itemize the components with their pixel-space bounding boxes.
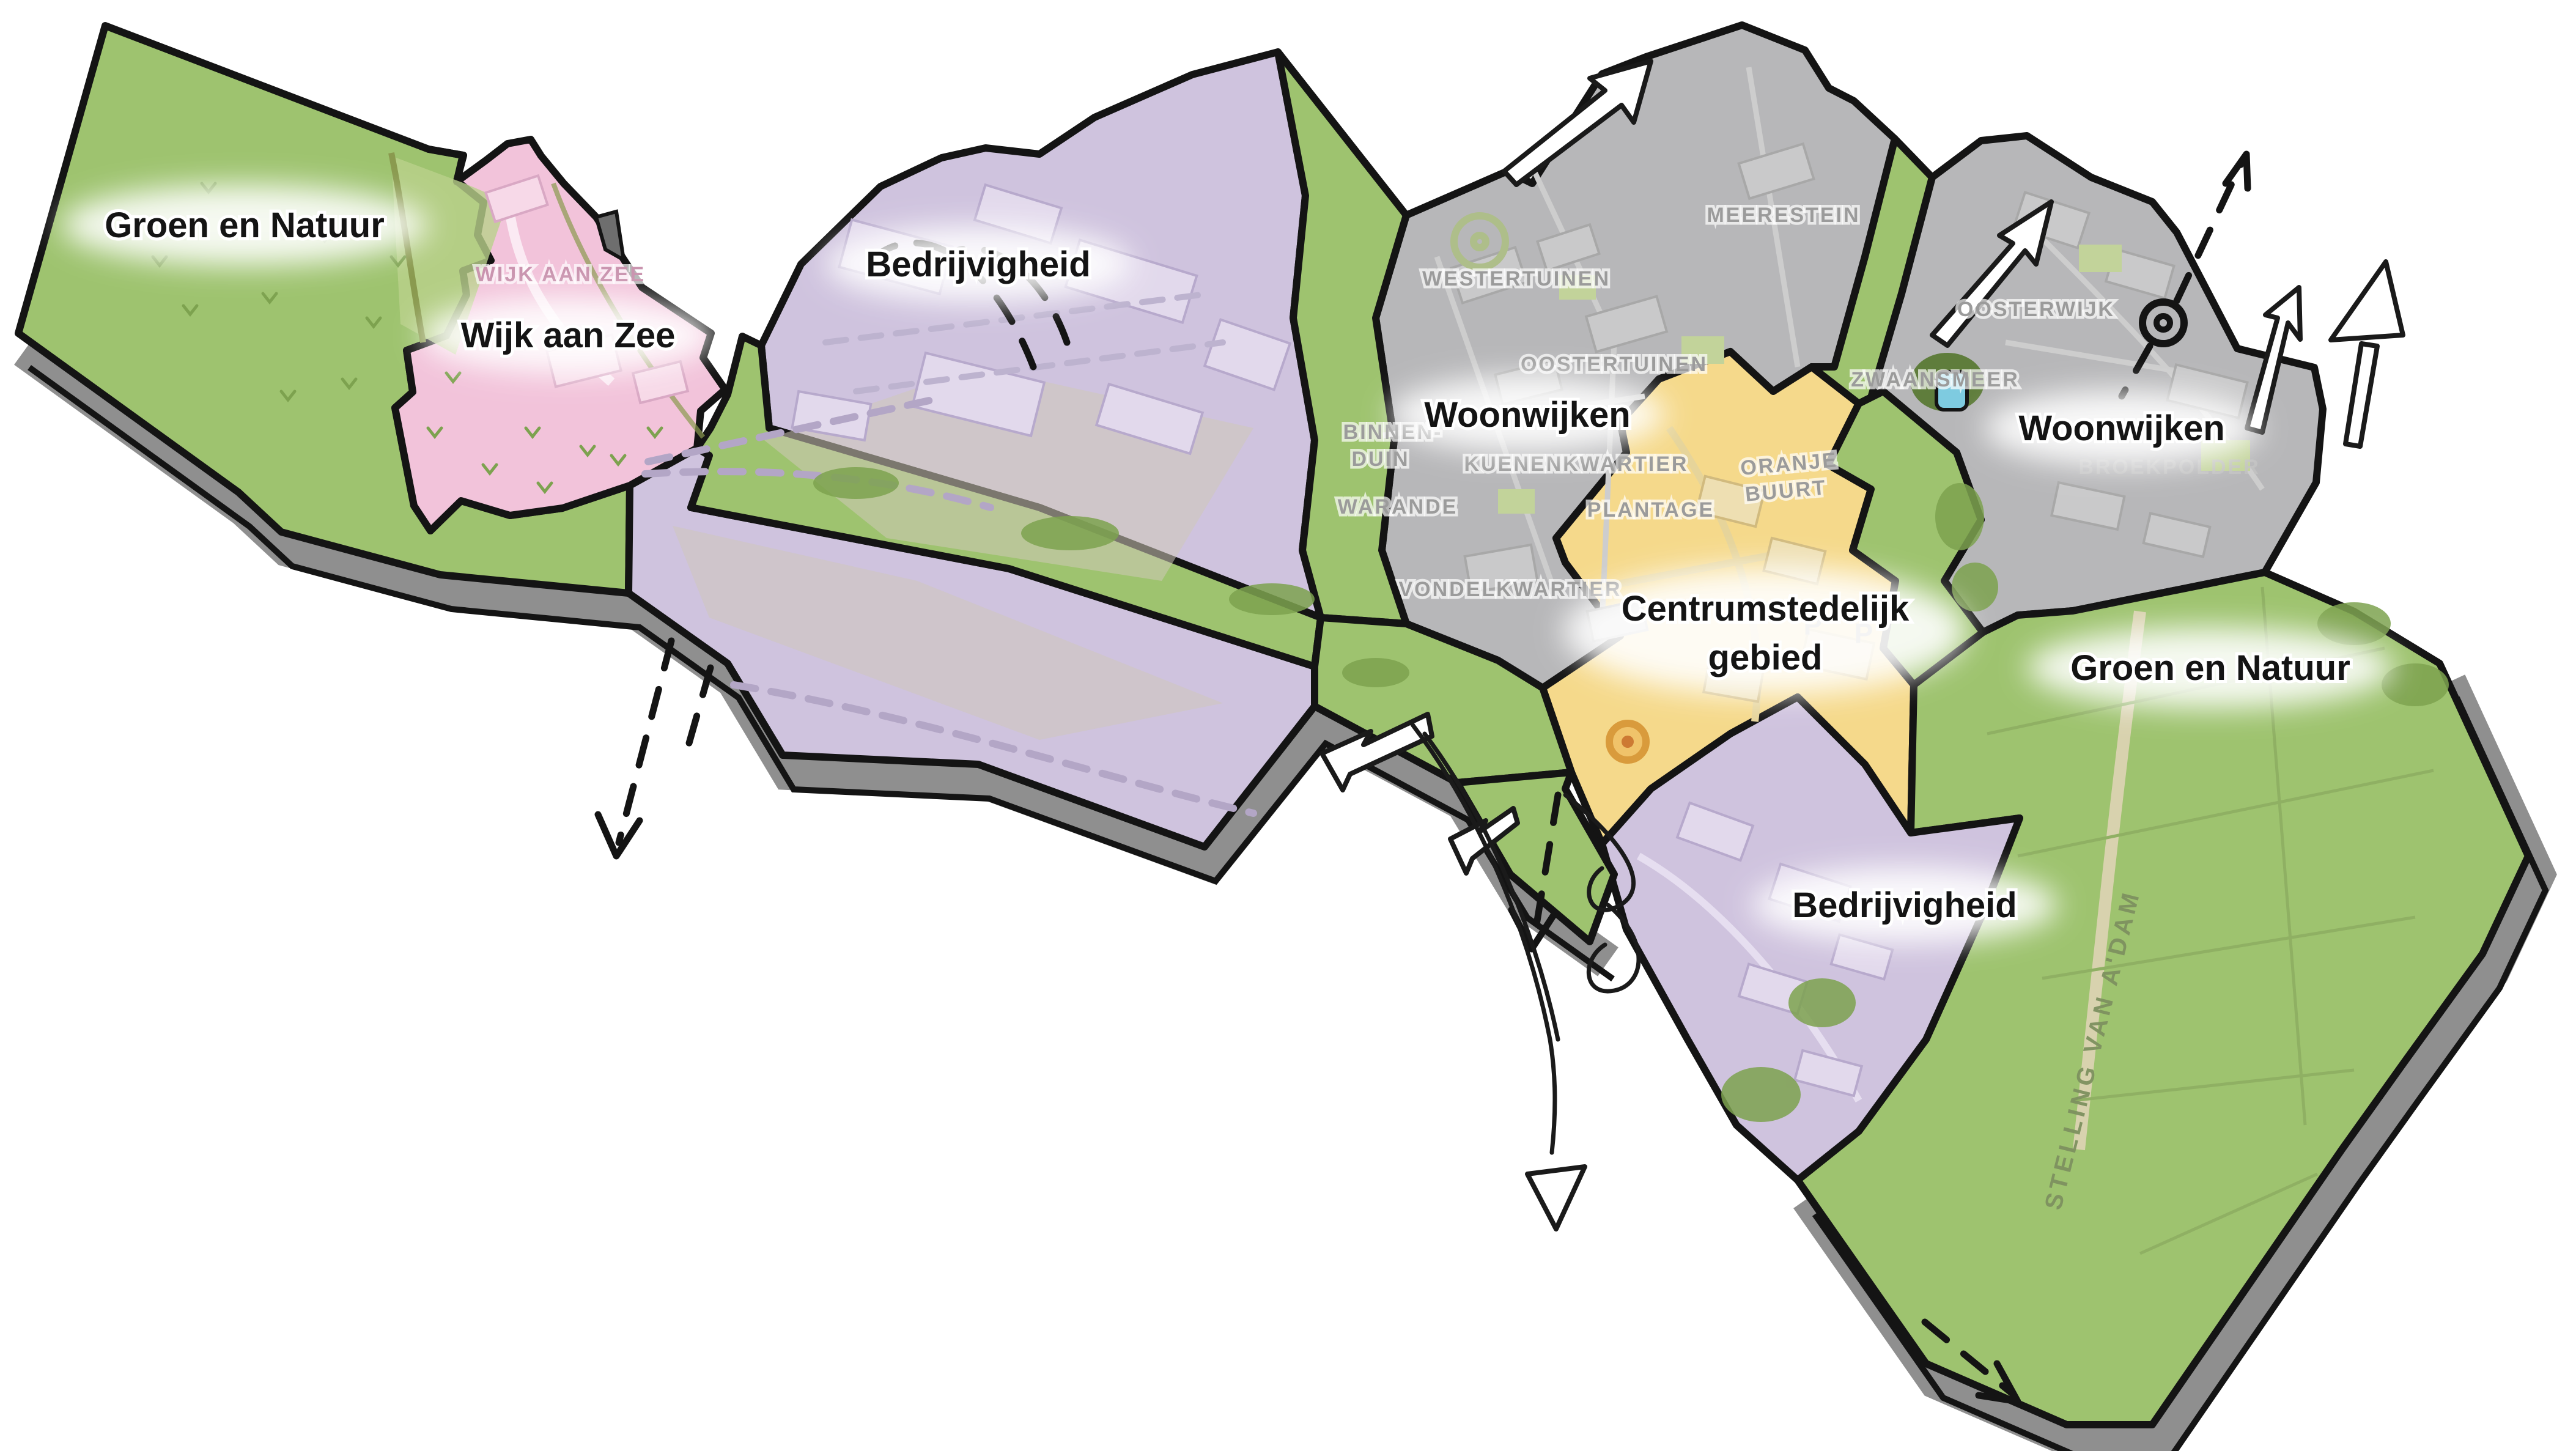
label-groen-natuur-oost: Groen en Natuur <box>2070 648 2350 688</box>
arrow-snelweg-zuid-icon <box>1527 1167 1585 1229</box>
label-bedrijvigheid-zuid: Bedrijvigheid <box>1792 885 2017 925</box>
label-wijk-aan-zee-klein: WIJK AAN ZEE <box>476 263 646 286</box>
label-plantage: PLANTAGE <box>1587 498 1714 522</box>
label-vondelkwartier: VONDELKWARTIER <box>1399 578 1622 601</box>
label-zwaansmeer: ZWAANSMEER <box>1851 368 2020 391</box>
label-duin: DUIN <box>1351 448 1409 471</box>
label-wijk-aan-zee: Wijk aan Zee <box>461 316 676 355</box>
label-westertuinen: WESTERTUINEN <box>1422 267 1611 290</box>
map-canvas: WIJK AAN ZEE WESTERTUINEN OOSTERTUINEN K… <box>0 0 2576 1451</box>
label-bedrijvigheid-noord: Bedrijvigheid <box>866 245 1090 284</box>
label-warande: WARANDE <box>1338 495 1458 519</box>
label-meerestein: MEERESTEIN <box>1707 204 1860 227</box>
label-woonwijken-west: Woonwijken <box>1424 395 1630 435</box>
label-centrumstedelijk-1: Centrumstedelijk <box>1622 589 1910 629</box>
zoning-map: WIJK AAN ZEE WESTERTUINEN OOSTERTUINEN K… <box>0 0 2576 1451</box>
arrow-oost-groot-icon <box>2331 262 2403 446</box>
label-oosterwijk: OOSTERWIJK <box>1957 298 2115 321</box>
label-groen-natuur-west: Groen en Natuur <box>105 205 385 245</box>
label-woonwijken-oost: Woonwijken <box>2018 408 2224 448</box>
label-centrumstedelijk-2: gebied <box>1708 638 1823 678</box>
label-oostertuinen: OOSTERTUINEN <box>1521 353 1708 376</box>
label-kuenenkwartier: KUENENKWARTIER <box>1464 452 1689 476</box>
